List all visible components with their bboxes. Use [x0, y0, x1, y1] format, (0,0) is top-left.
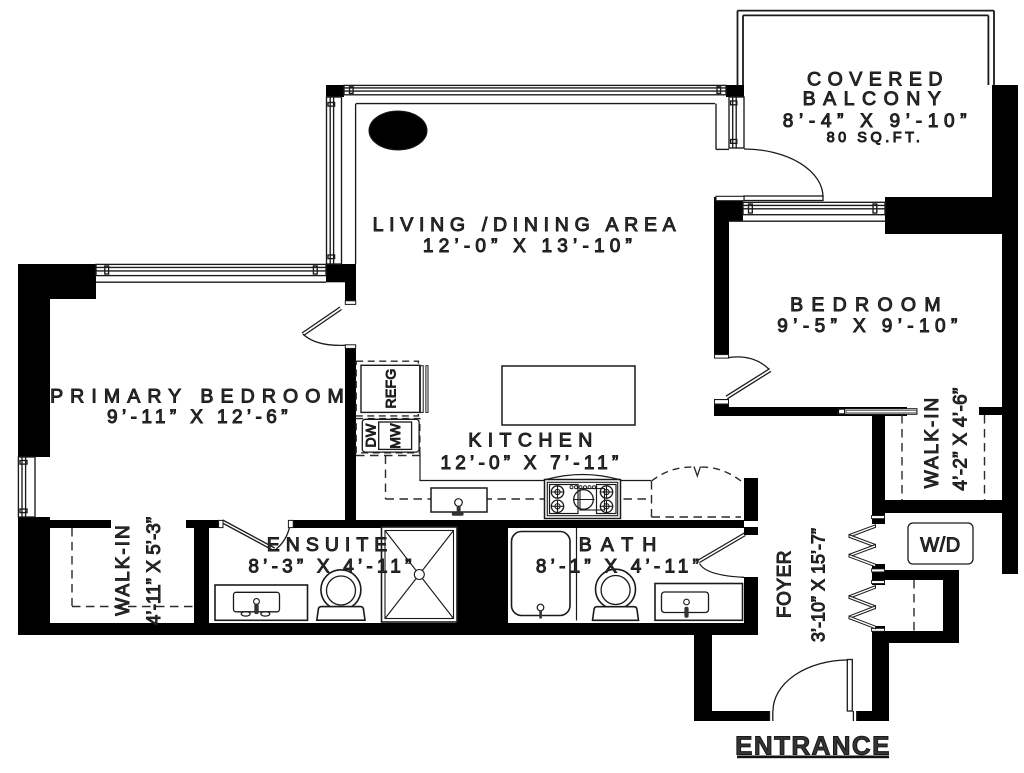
- svg-text:KITCHEN: KITCHEN: [468, 430, 598, 452]
- svg-text:FOYER: FOYER: [775, 550, 796, 618]
- svg-text:W/D: W/D: [920, 535, 960, 557]
- svg-text:4’-2” X 4’-6”: 4’-2” X 4’-6”: [951, 387, 972, 490]
- svg-text:8’-4” X 9’-10”: 8’-4” X 9’-10”: [783, 111, 973, 132]
- svg-text:9’-11” X 12’-6”: 9’-11” X 12’-6”: [107, 407, 292, 428]
- svg-text:12’-0” X 7’-11”: 12’-0” X 7’-11”: [441, 453, 623, 474]
- svg-text:BEDROOM: BEDROOM: [790, 294, 949, 316]
- svg-text:BALCONY: BALCONY: [803, 88, 949, 110]
- svg-text:WALK-IN: WALK-IN: [113, 523, 134, 615]
- svg-text:ENSUITE: ENSUITE: [267, 534, 394, 556]
- svg-text:MW: MW: [387, 423, 403, 449]
- svg-text:WALK-IN: WALK-IN: [922, 396, 943, 488]
- svg-text:9’-5” X 9’-10”: 9’-5” X 9’-10”: [777, 316, 962, 337]
- svg-text:12’-0” X 13’-10”: 12’-0” X 13’-10”: [423, 236, 637, 257]
- svg-text:4’-11” X 5’-3”: 4’-11” X 5’-3”: [144, 517, 165, 625]
- svg-text:3’-10” X 15’-7”: 3’-10” X 15’-7”: [809, 528, 829, 642]
- svg-text:LIVING /DINING AREA: LIVING /DINING AREA: [373, 214, 682, 236]
- svg-text:BATH: BATH: [579, 534, 666, 556]
- svg-text:REFG: REFG: [382, 368, 398, 408]
- svg-text:80 SQ.FT.: 80 SQ.FT.: [827, 130, 924, 146]
- svg-text:8’-3” X 4’-11”: 8’-3” X 4’-11”: [248, 557, 415, 578]
- svg-text:8’-1” X 4’-11”: 8’-1” X 4’-11”: [536, 557, 703, 578]
- svg-text:PRIMARY BEDROOM: PRIMARY BEDROOM: [50, 386, 351, 408]
- svg-text:DW: DW: [362, 423, 378, 447]
